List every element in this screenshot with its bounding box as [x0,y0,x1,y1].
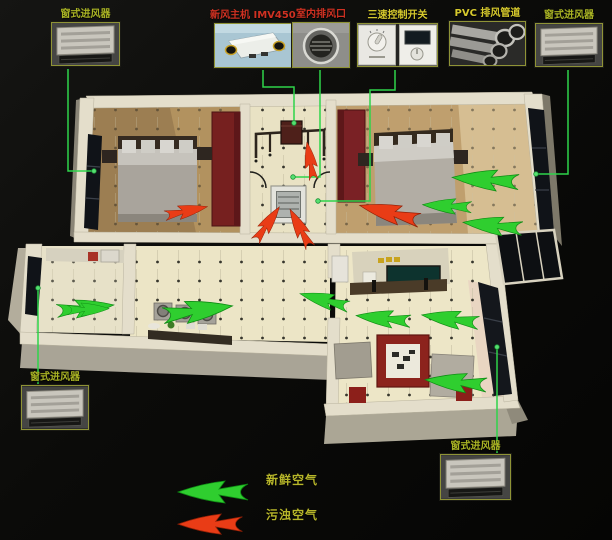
pvc-pipes-image [449,21,526,66]
wall-bathroom-right [122,244,136,334]
nightstand [197,147,212,160]
window-inlet-image [440,454,511,500]
card-window-inlet-top-left: 窗式进风器 [51,9,120,66]
card-pvc-duct: PVC 排风管道 [449,8,526,66]
ottoman [334,342,372,379]
card-indoor-exhaust-vent: 室内排风口 [292,9,350,68]
connector-dot [291,175,296,180]
card-label: 新风主机 IMV450 [210,10,296,21]
ventilation-diagram: 窗式进风器 新风主机 IMV450 室内排风口 三速控制开关 PVC 排风管道 … [0,0,612,540]
fresh-air-arrow [178,481,248,503]
stool-red [349,387,366,403]
card-fresh-air-unit: 新风主机 IMV450 [210,10,296,68]
legend-polluted-air-label: 污浊空气 [266,506,318,523]
fresh-air-unit-image [214,23,292,68]
floor-plan-svg [0,0,612,540]
connector-dot [92,169,97,174]
bathroom-fixtures [46,248,124,263]
connector-dot [36,286,41,291]
connector-dot [534,172,539,177]
nightstand [452,150,468,164]
window-inlet-image [535,23,603,67]
window-inlet-image [21,385,89,430]
polluted-air-arrow [178,514,242,534]
nightstand [102,150,117,163]
card-speed-switch: 三速控制开关 [357,10,438,67]
wall-mid [74,232,554,244]
round-exhaust-vent-image [292,22,350,68]
wall-hallway-left [240,104,250,234]
connector-dot [292,121,297,126]
window-inlet-image [51,22,120,66]
connector-dot [495,345,500,350]
card-label: 三速控制开关 [368,10,428,21]
card-label: 窗式进风器 [451,441,501,452]
card-label: PVC 排风管道 [455,8,521,19]
tv-screen [387,266,440,282]
card-window-inlet-bottom-right: 窗式进风器 [440,441,511,500]
card-window-inlet-left: 窗式进风器 [21,372,89,430]
wall-hallway-right [326,100,336,234]
card-label: 窗式进风器 [544,10,594,21]
card-window-inlet-top-right: 窗式进风器 [535,10,603,67]
card-label: 窗式进风器 [61,9,111,20]
floor-plan [8,92,562,444]
legend-fresh-air-label: 新鲜空气 [266,471,318,488]
balcony-bay [496,230,562,284]
fresh-air-unit-ceiling [281,121,302,144]
card-label: 室内排风口 [296,9,346,20]
three-speed-switch-image [357,23,438,67]
connector-dot [316,199,321,204]
card-label: 窗式进风器 [30,372,80,383]
